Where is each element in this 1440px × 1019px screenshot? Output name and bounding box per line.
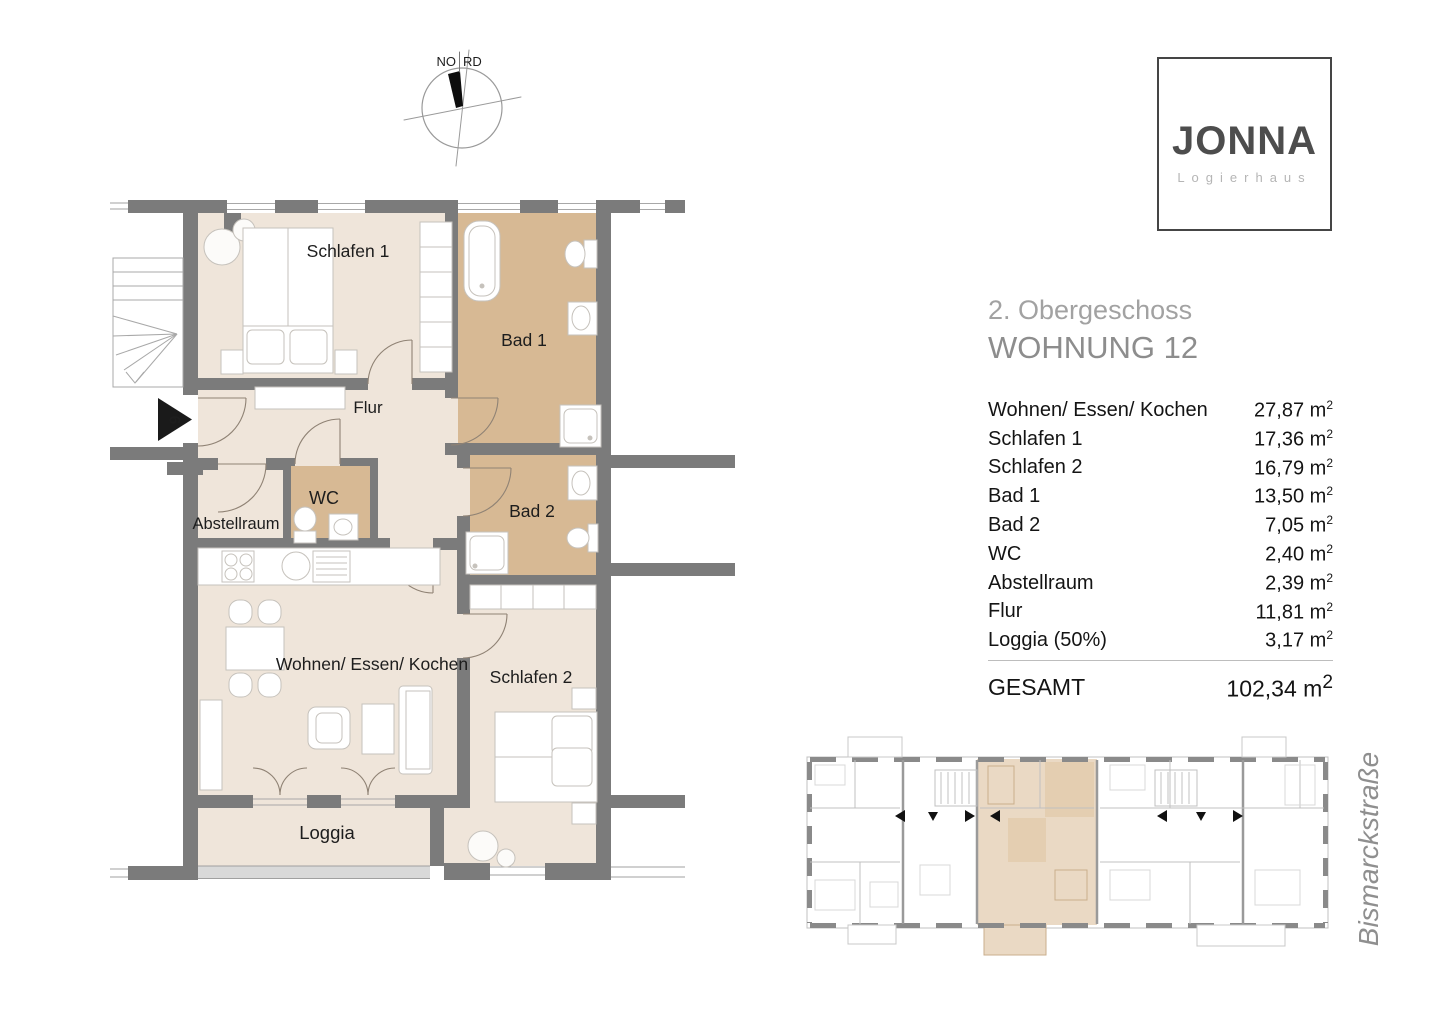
area-row-label: Schlafen 2: [988, 456, 1083, 479]
area-row-label: Bad 2: [988, 514, 1040, 537]
toilet-wc: [294, 507, 316, 543]
area-row-value: 11,81 m2: [1256, 600, 1334, 625]
plan-header: 2. Obergeschoss WOHNUNG 12: [988, 295, 1198, 366]
logo-subtitle: Logierhaus: [1159, 170, 1330, 185]
area-row: Schlafen 1 17,36 m2: [988, 425, 1333, 454]
total-value: 102,34 m2: [1226, 672, 1333, 703]
label-bad2: Bad 2: [509, 501, 555, 521]
compass-rose: NO RD: [404, 50, 521, 166]
area-row-label: Wohnen/ Essen/ Kochen: [988, 399, 1208, 422]
area-row: Bad 2 7,05 m2: [988, 511, 1333, 540]
area-row-value: 2,39 m2: [1265, 571, 1333, 596]
label-loggia: Loggia: [299, 822, 355, 843]
total-label: GESAMT: [988, 674, 1085, 701]
toilet-bad1: [565, 240, 597, 268]
bathtub-bad1: [464, 221, 500, 301]
compass-needle: [448, 71, 463, 108]
area-row: Abstellraum 2,39 m2: [988, 569, 1333, 598]
area-row: Wohnen/ Essen/ Kochen 27,87 m2: [988, 396, 1333, 425]
area-row: Flur 11,81 m2: [988, 598, 1333, 627]
floor-title: 2. Obergeschoss: [988, 295, 1198, 326]
street-label: Bismarckstraße: [1353, 751, 1387, 947]
area-row-value: 7,05 m2: [1265, 513, 1333, 538]
floorplan-page: NO RD: [0, 0, 1440, 1019]
sideboard-flur: [255, 387, 345, 409]
area-row-label: Flur: [988, 600, 1022, 623]
label-schlafen2: Schlafen 2: [490, 667, 573, 687]
label-wc: WC: [309, 488, 339, 508]
label-flur: Flur: [353, 398, 383, 417]
label-bad1: Bad 1: [501, 330, 547, 350]
wardrobe-schlafen2: [470, 585, 596, 609]
area-row-value: 13,50 m2: [1254, 484, 1333, 509]
area-row: Bad 1 13,50 m2: [988, 482, 1333, 511]
area-row-value: 17,36 m2: [1254, 427, 1333, 452]
logo-name: JONNA: [1159, 119, 1330, 164]
label-wohnen: Wohnen/ Essen/ Kochen: [276, 654, 468, 674]
label-schlafen1: Schlafen 1: [307, 241, 390, 261]
compass-label-no: NO: [437, 54, 457, 69]
highlighted-loggia: [984, 925, 1046, 955]
compass-label-rd: RD: [463, 54, 482, 69]
total-row: GESAMT 102,34 m2: [988, 661, 1333, 703]
building-overview: [807, 737, 1328, 955]
entrance-marker: 6: [158, 398, 192, 441]
area-row: Schlafen 2 16,79 m2: [988, 454, 1333, 483]
sink-bad1: [568, 302, 597, 335]
shower-bad2: [466, 532, 508, 574]
label-abstellraum: Abstellraum: [192, 515, 279, 533]
area-row-value: 3,17 m2: [1265, 628, 1333, 653]
area-row: Loggia (50%) 3,17 m2: [988, 626, 1333, 655]
area-row: WC 2,40 m2: [988, 540, 1333, 569]
staircase: [113, 258, 183, 387]
unit-title: WOHNUNG 12: [988, 329, 1198, 366]
area-row-label: Schlafen 1: [988, 428, 1083, 451]
area-row-value: 27,87 m2: [1254, 398, 1333, 423]
area-row-label: Abstellraum: [988, 572, 1094, 595]
area-row-label: Bad 1: [988, 485, 1040, 508]
shower-bad1: [560, 405, 601, 447]
wardrobe-schlafen1: [420, 222, 452, 372]
area-row-label: Loggia (50%): [988, 629, 1107, 652]
area-row-value: 16,79 m2: [1254, 456, 1333, 481]
area-row-value: 2,40 m2: [1265, 542, 1333, 567]
area-row-label: WC: [988, 543, 1021, 566]
entrance-number: 6: [166, 416, 183, 425]
jonna-logo: JONNA Logierhaus: [1157, 57, 1332, 231]
sink-bad2: [568, 466, 597, 500]
kitchen-counter: [198, 548, 440, 585]
sink-wc: [329, 514, 358, 540]
area-table: Wohnen/ Essen/ Kochen 27,87 m2 Schlafen …: [988, 396, 1333, 703]
apartment-plan: 6: [110, 200, 735, 880]
